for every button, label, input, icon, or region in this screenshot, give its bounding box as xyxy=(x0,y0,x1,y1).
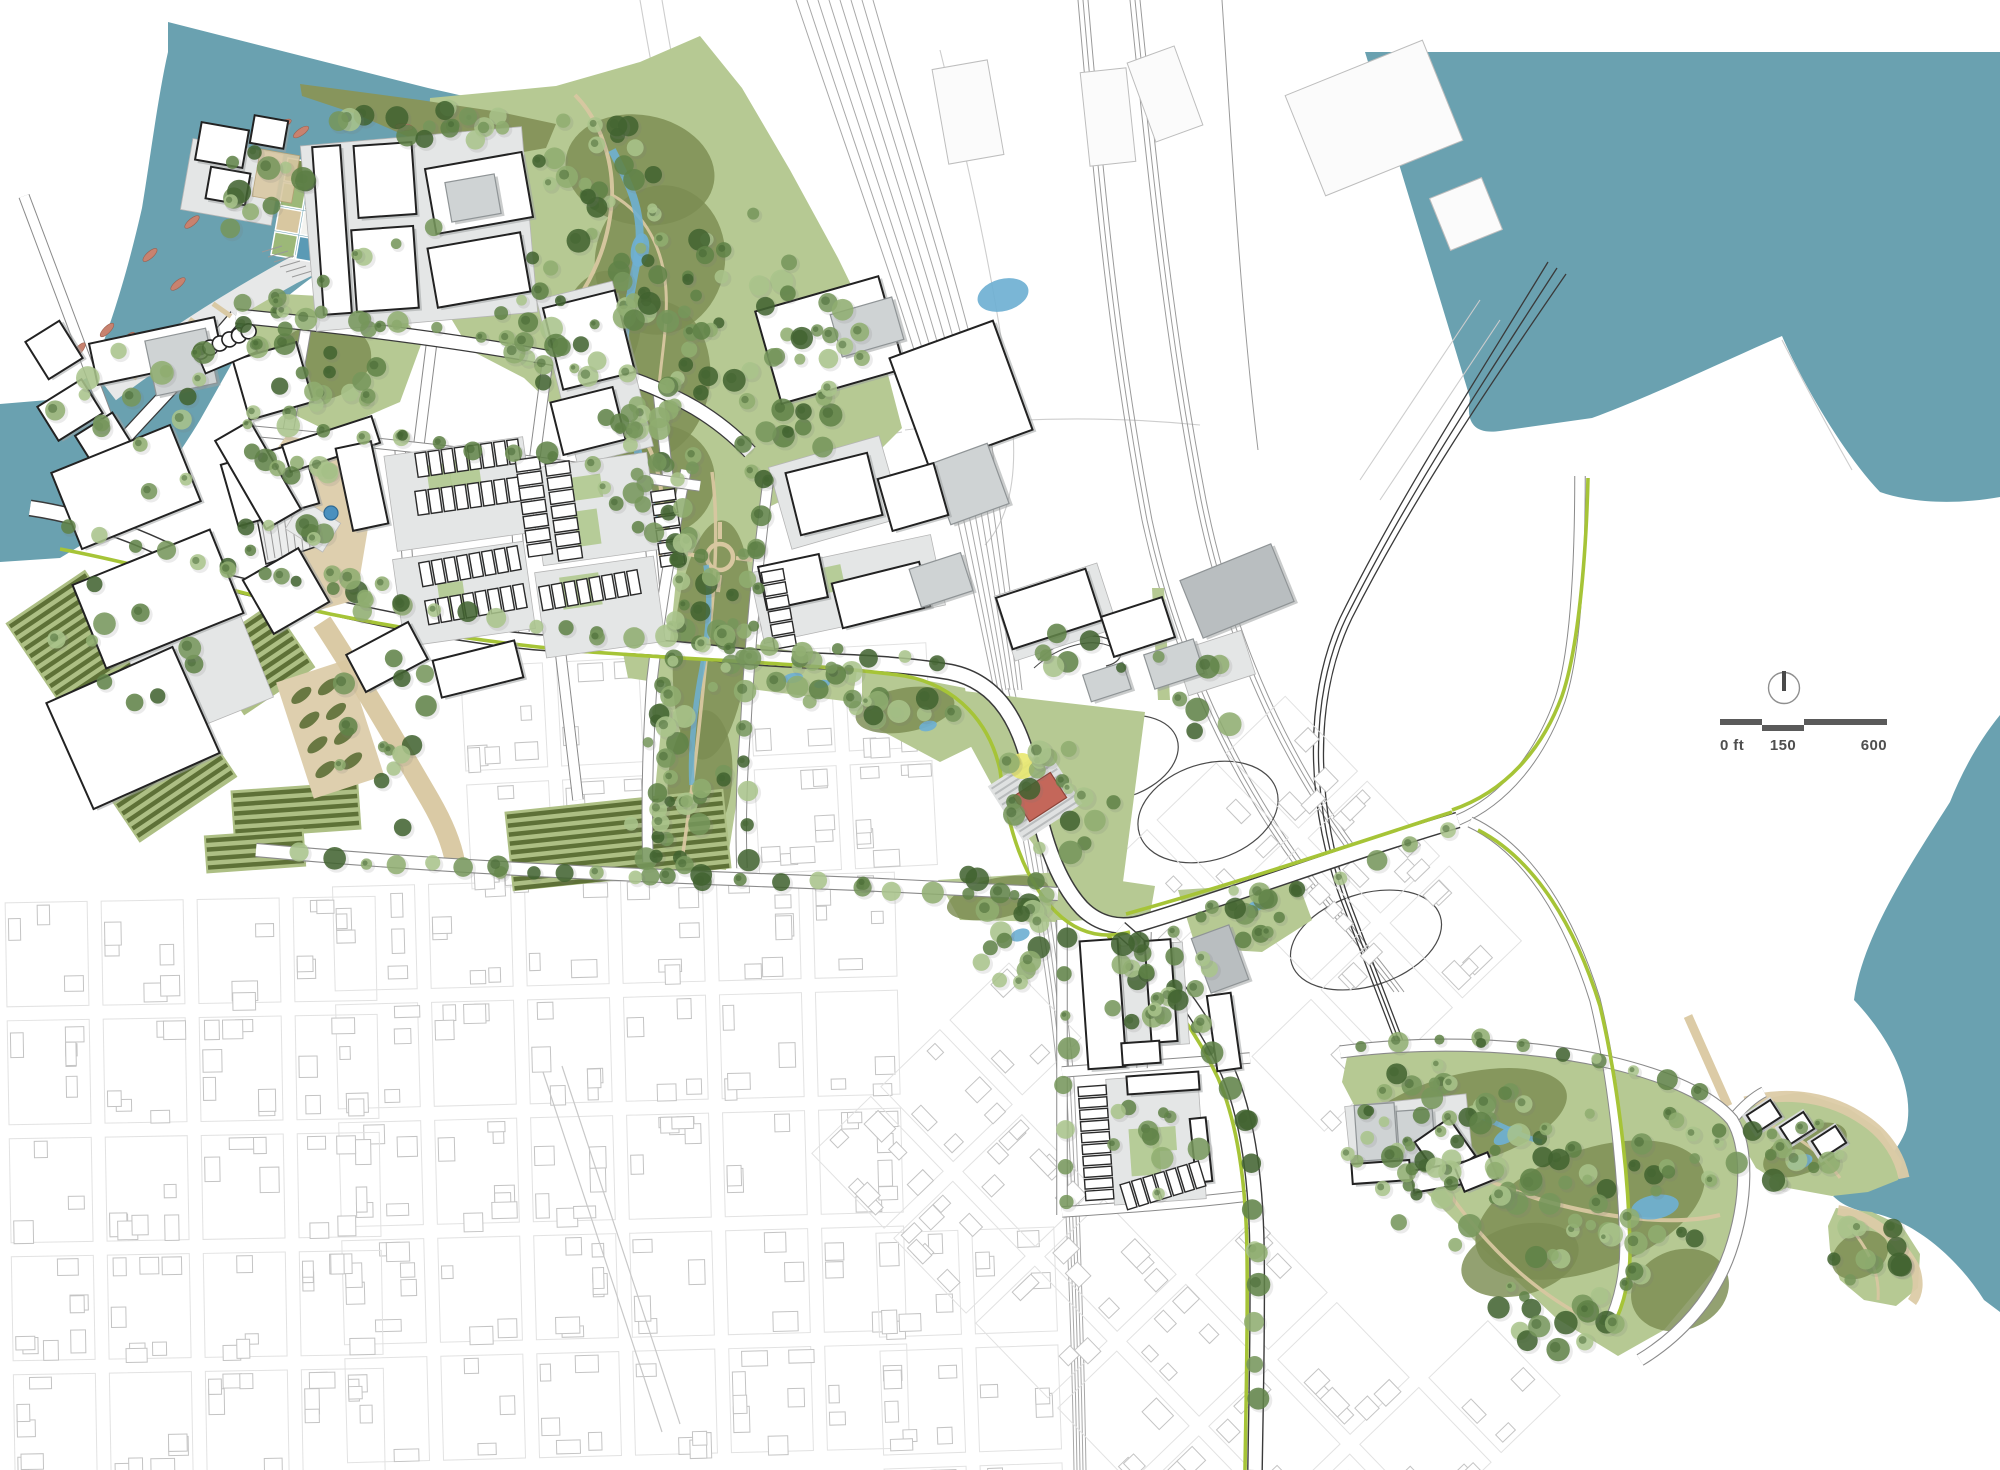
north-arrow-icon xyxy=(1769,671,1800,704)
fabric-zone xyxy=(332,872,909,1467)
scale-label-mid: 150 xyxy=(1770,737,1796,754)
scale-label-start: 0 ft xyxy=(1720,737,1744,754)
scale-segment-2 xyxy=(1762,725,1804,731)
scale-label-end: 600 xyxy=(1861,737,1887,754)
scale-segment-3 xyxy=(1804,719,1887,725)
map-layers xyxy=(0,0,2000,1470)
map-legend: 0 ft 150 600 xyxy=(1720,671,1887,754)
masterplan-page: 0 ft 150 600 xyxy=(0,0,2000,1470)
site-plan-map: 0 ft 150 600 xyxy=(0,0,2000,1470)
scale-bar: 0 ft 150 600 xyxy=(1720,719,1887,754)
scale-segment-1 xyxy=(1720,719,1762,725)
fabric-zone xyxy=(5,896,385,1470)
